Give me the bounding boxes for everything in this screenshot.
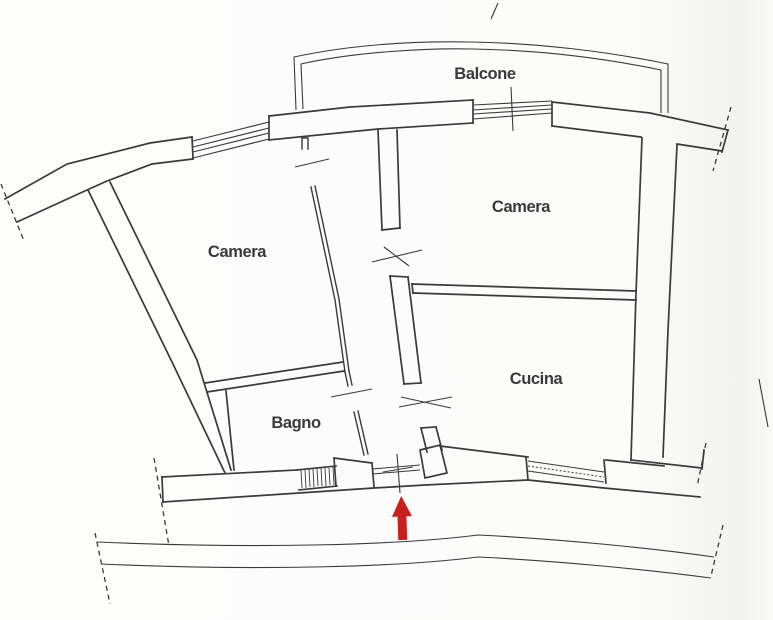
wall-line	[205, 362, 343, 383]
wall-block	[334, 458, 374, 487]
exterior-wall-top-right	[552, 102, 728, 152]
bagno-vent-window-hatch	[301, 467, 334, 488]
cut-line	[1, 184, 24, 241]
room-label-balcone: Balcone	[454, 65, 516, 83]
partition-camera-cucina	[412, 284, 636, 300]
balcony-door-axis-tick	[511, 87, 513, 131]
wall-line	[397, 130, 400, 228]
door-tick-cucina	[399, 397, 452, 408]
cut-line	[713, 107, 731, 171]
exterior-wall-left-diagonal	[88, 182, 234, 473]
cut-line	[95, 533, 110, 604]
wall-line	[110, 182, 231, 470]
wall-end-cap	[192, 137, 193, 159]
room-label-camera-right: Camera	[492, 198, 551, 216]
vent-window-edge	[299, 486, 337, 490]
entrance-arrow-shape	[391, 496, 413, 541]
street-line	[101, 557, 711, 578]
wall-line	[269, 100, 473, 116]
door-tick-right-camera	[372, 247, 422, 266]
cucina-window-glazing-dotted	[528, 466, 604, 477]
floor-plan-page: Balcone Camera Camera Cucina Bagno	[0, 0, 773, 620]
wall-line	[354, 411, 368, 455]
plan-linework	[1, 3, 768, 604]
wall-corner-block	[420, 445, 447, 478]
exterior-wall-right	[631, 138, 704, 469]
door-tick-bagno	[331, 389, 372, 397]
wall-line	[315, 186, 349, 371]
wall-line	[17, 159, 193, 222]
wall-end-cap	[412, 284, 413, 293]
door-jamb-cap	[390, 276, 408, 277]
cucina-window-glazing	[528, 461, 604, 482]
room-label-camera-left: Camera	[208, 243, 267, 261]
section-cut-tick-top	[491, 3, 498, 19]
neighbour-wall-fragment	[759, 379, 768, 427]
wall-line	[552, 126, 641, 137]
vent-window-edge	[297, 466, 336, 470]
wall-line	[440, 446, 528, 457]
wall-line	[677, 144, 722, 151]
room-label-bagno: Bagno	[271, 414, 321, 432]
cut-line	[711, 525, 723, 576]
wall-outer-face	[163, 480, 700, 502]
wall-line	[5, 137, 192, 199]
wall-line	[88, 190, 225, 473]
window-jamb-cap	[526, 457, 528, 480]
wall-line	[412, 284, 636, 291]
door-jamb-cap	[421, 427, 436, 428]
wall-line	[413, 293, 636, 300]
door-jamb-cap	[404, 383, 421, 384]
wall-end-cap	[162, 477, 163, 502]
door-jamb-bracket	[302, 138, 308, 149]
floor-plan-drawing: Balcone Camera Camera Cucina Bagno	[0, 0, 773, 620]
partition-corridor-left	[302, 138, 368, 455]
window-jamb-cap	[604, 460, 606, 483]
wall-line	[631, 138, 642, 460]
wall-end-cap	[722, 130, 728, 152]
exterior-wall-top-left	[5, 137, 193, 222]
exterior-wall-top-middle	[269, 100, 473, 140]
wall-line	[378, 130, 382, 230]
wall-line	[207, 371, 344, 392]
entrance-arrow-icon	[391, 496, 413, 541]
exterior-wall-bottom	[162, 458, 700, 502]
room-label-cucina: Cucina	[510, 370, 564, 388]
wall-line	[269, 123, 473, 140]
corridor-right-wall	[378, 130, 447, 478]
partition-bagno-camera	[205, 362, 344, 392]
window-glazing-left-camera	[193, 122, 269, 158]
wall-line	[663, 145, 677, 457]
wall-line	[311, 187, 345, 372]
street-boundary-lines	[97, 535, 714, 578]
door-tick-left-camera	[295, 159, 329, 167]
wall-line	[552, 102, 728, 130]
wall-line	[162, 470, 297, 477]
door-jamb-cap	[382, 228, 400, 230]
wall-line	[390, 276, 404, 384]
wall-line	[345, 371, 352, 386]
